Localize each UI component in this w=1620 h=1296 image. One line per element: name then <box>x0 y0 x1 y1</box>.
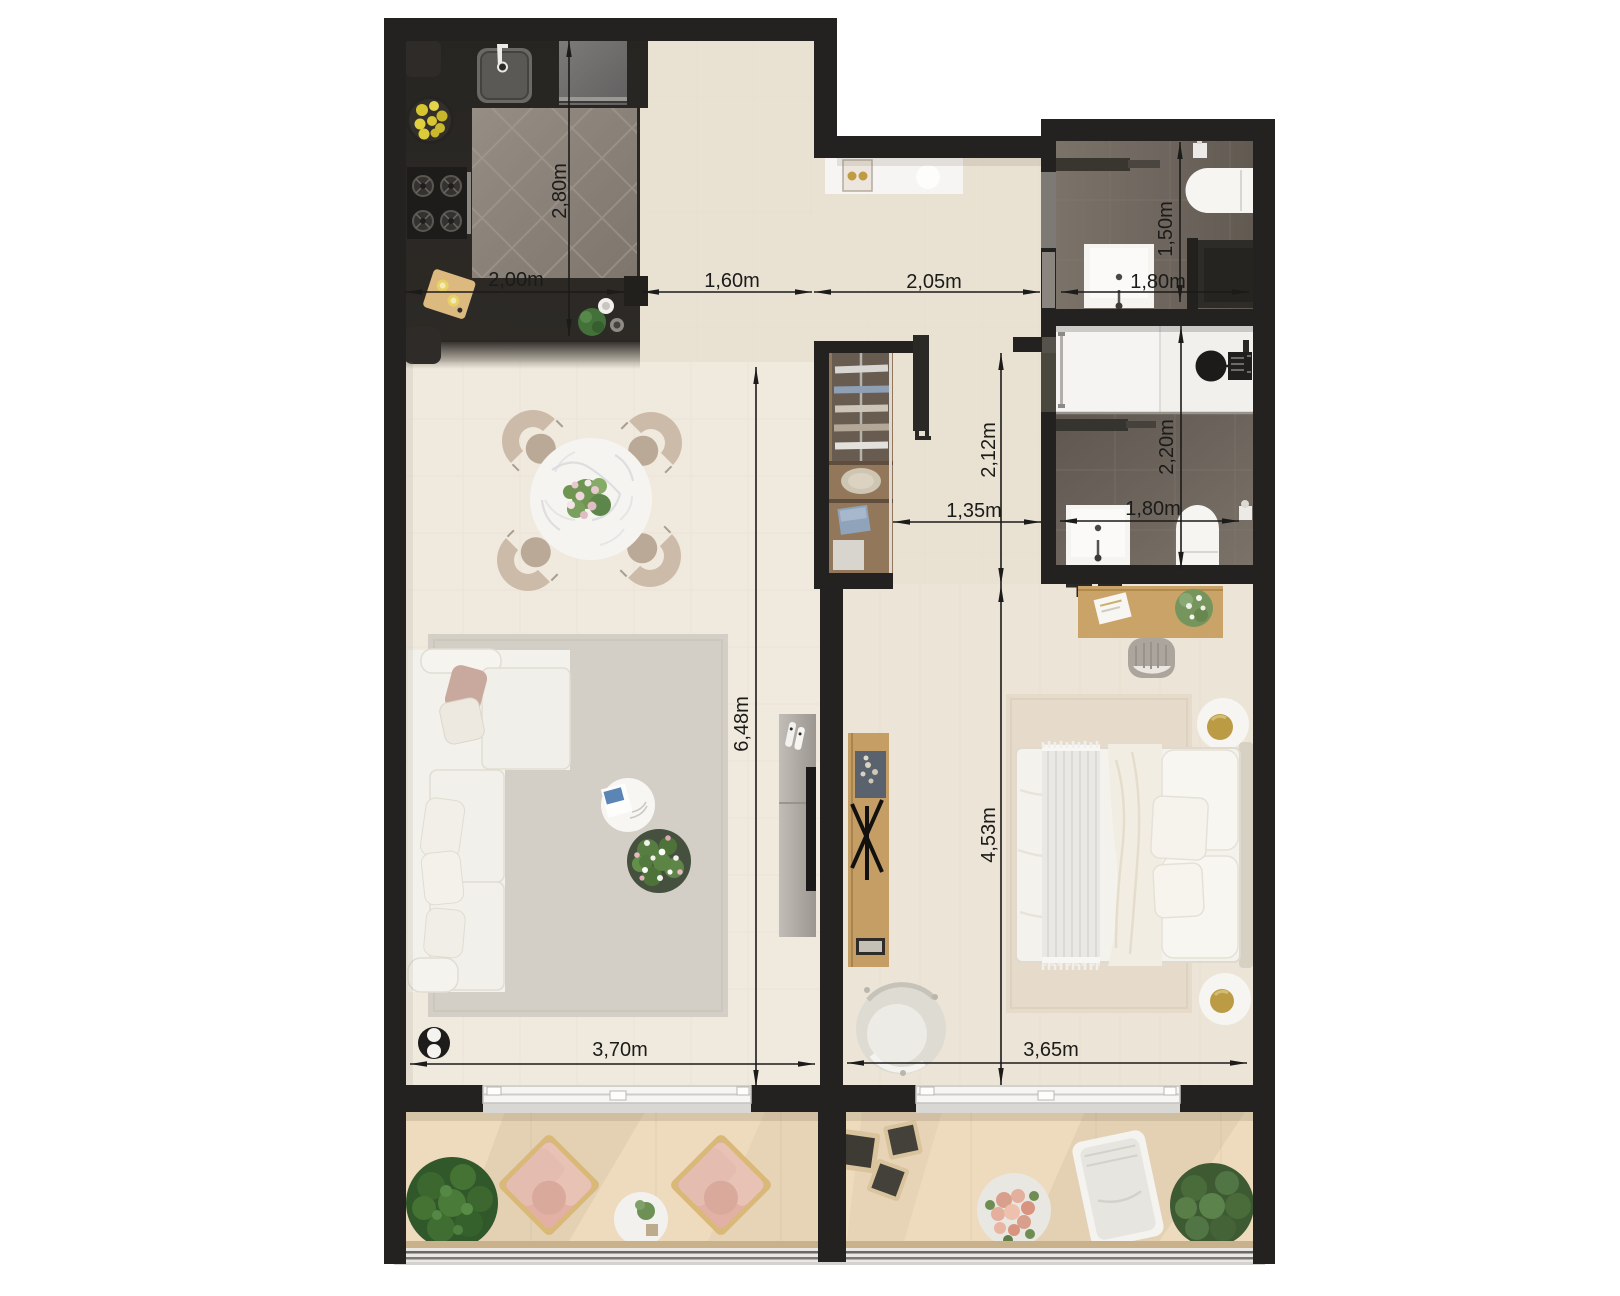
svg-text:2,80m: 2,80m <box>549 163 571 219</box>
svg-text:2,00m: 2,00m <box>488 269 544 291</box>
svg-text:4,53m: 4,53m <box>978 807 1000 863</box>
svg-text:1,80m: 1,80m <box>1125 498 1181 520</box>
svg-text:2,20m: 2,20m <box>1156 419 1178 475</box>
svg-text:1,35m: 1,35m <box>946 500 1002 522</box>
svg-text:6,48m: 6,48m <box>731 696 753 752</box>
svg-text:1,50m: 1,50m <box>1155 201 1177 257</box>
svg-text:1,60m: 1,60m <box>704 270 760 292</box>
svg-text:3,70m: 3,70m <box>592 1039 648 1061</box>
svg-text:2,12m: 2,12m <box>978 422 1000 478</box>
svg-text:2,05m: 2,05m <box>906 271 962 293</box>
svg-text:1,80m: 1,80m <box>1130 271 1186 293</box>
svg-text:3,65m: 3,65m <box>1023 1039 1079 1061</box>
